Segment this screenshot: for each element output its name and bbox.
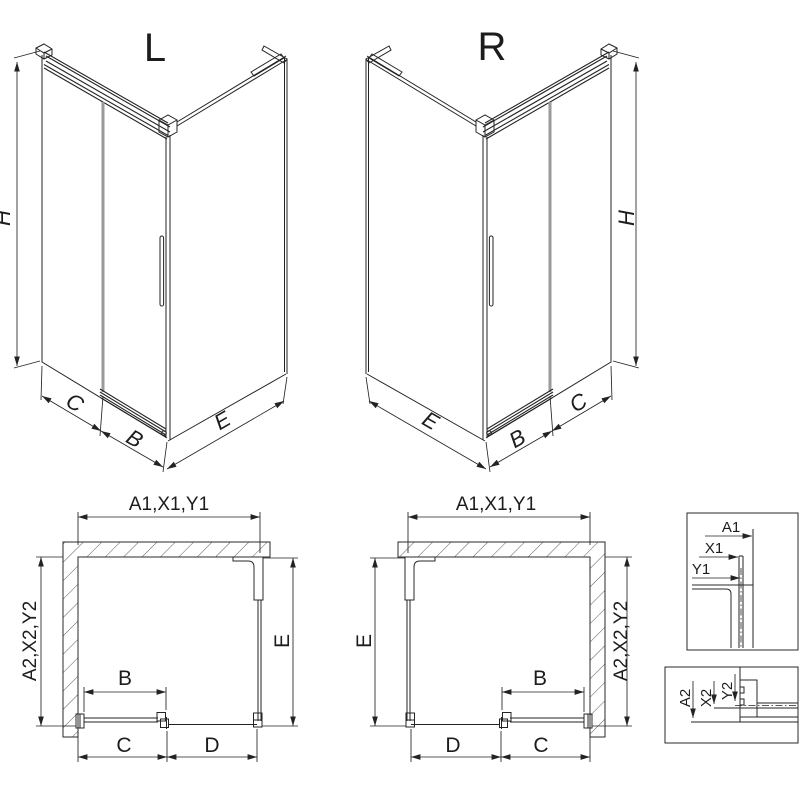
iso-right-dim-e: E xyxy=(418,406,443,435)
iso-left-dim-c: C xyxy=(62,388,89,418)
detail-floor-dim-x2: X2 xyxy=(698,689,715,707)
iso-left-view: L H C B E xyxy=(0,26,287,472)
detail-floor-dim-y2: Y2 xyxy=(719,682,736,700)
iso-right-dim-b: B xyxy=(505,424,530,453)
detail-wall-dim-x1: X1 xyxy=(705,540,723,557)
detail-wall-dim-a1: A1 xyxy=(722,519,740,536)
iso-left-dim-b: B xyxy=(122,424,147,453)
detail-wall-dim-y1: Y1 xyxy=(692,561,710,578)
plan-right-view: A1,X1,Y1 E A2,X2,Y2 B D C xyxy=(353,494,632,762)
shower-enclosure-drawing: L H C B E R H E B C A1,X1,Y1 A2,X2,Y2 E … xyxy=(0,0,800,800)
detail-wall-profile: A1 X1 Y1 xyxy=(687,513,798,650)
plan-left-walls xyxy=(63,542,270,737)
iso-left-dim-h: H xyxy=(0,210,15,226)
plan-left-view: A1,X1,Y1 A2,X2,Y2 E B C D xyxy=(20,494,298,762)
plan-left-dim-top: A1,X1,Y1 xyxy=(129,494,209,515)
plan-left-dim-right: E xyxy=(271,634,294,648)
plan-right-dim-top: A1,X1,Y1 xyxy=(456,494,536,515)
plan-right-dim-bottom-left: D xyxy=(445,734,460,757)
iso-right-variant-label: R xyxy=(478,25,507,69)
iso-right-dim-c: C xyxy=(565,388,592,418)
plan-right-dim-door: B xyxy=(533,667,547,690)
plan-left-dim-bottom-right: D xyxy=(204,734,219,757)
iso-left-dim-e: E xyxy=(210,406,235,435)
plan-right-dim-bottom-right: C xyxy=(533,734,548,757)
detail-floor-dim-a2: A2 xyxy=(677,689,694,707)
plan-right-walls xyxy=(398,542,605,737)
iso-right-dim-h: H xyxy=(614,210,639,226)
detail-floor-profile: A2 X2 Y2 xyxy=(665,667,798,743)
plan-left-dim-left: A2,X2,Y2 xyxy=(20,601,41,681)
plan-left-dim-bottom-left: C xyxy=(116,734,131,757)
iso-left-variant-label: L xyxy=(144,26,166,70)
technical-drawing-page: L H C B E R H E B C A1,X1,Y1 A2,X2,Y2 E … xyxy=(0,0,800,800)
plan-left-dim-door: B xyxy=(118,667,132,690)
plan-right-dim-left: E xyxy=(353,634,376,648)
iso-right-view: R H E B C xyxy=(366,25,639,472)
plan-right-dim-right: A2,X2,Y2 xyxy=(611,601,632,681)
